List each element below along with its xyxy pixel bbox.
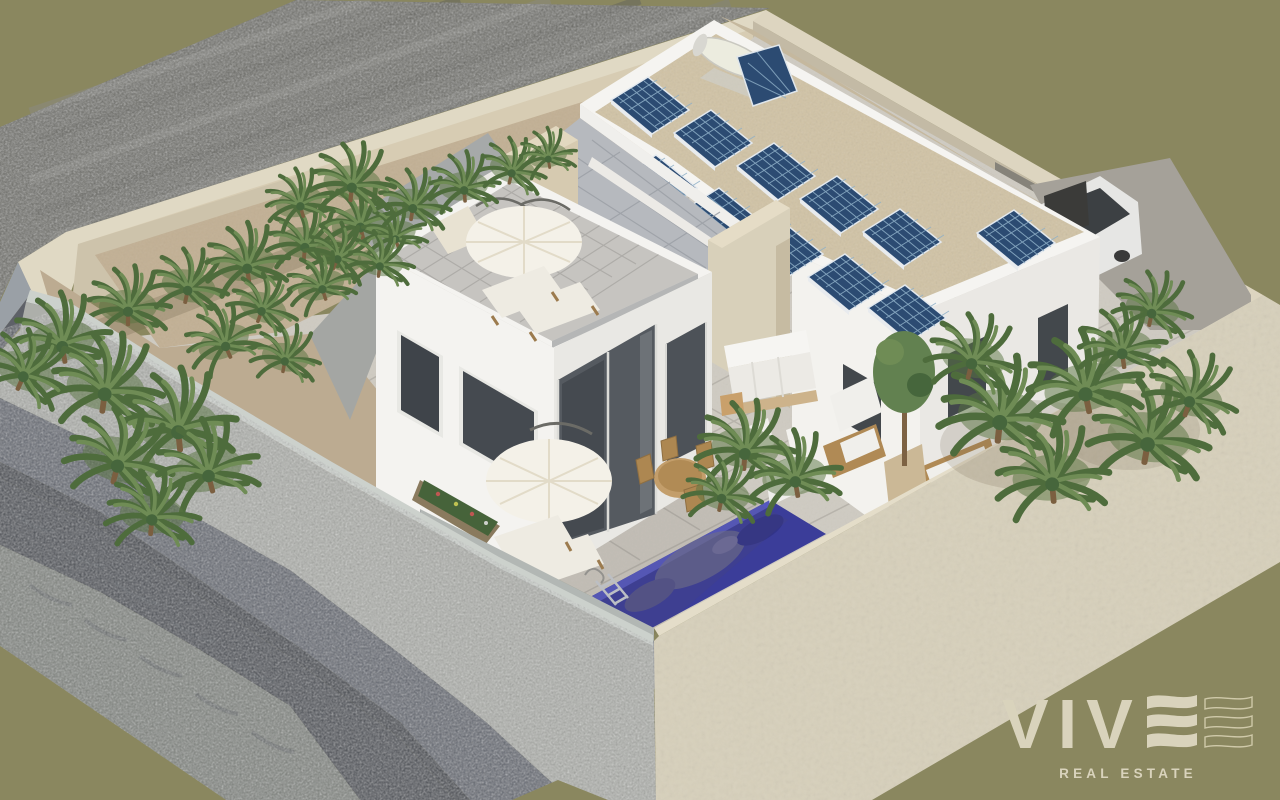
svg-text:VIV: VIV <box>1002 685 1142 763</box>
svg-text:REAL ESTATE: REAL ESTATE <box>1059 766 1197 781</box>
